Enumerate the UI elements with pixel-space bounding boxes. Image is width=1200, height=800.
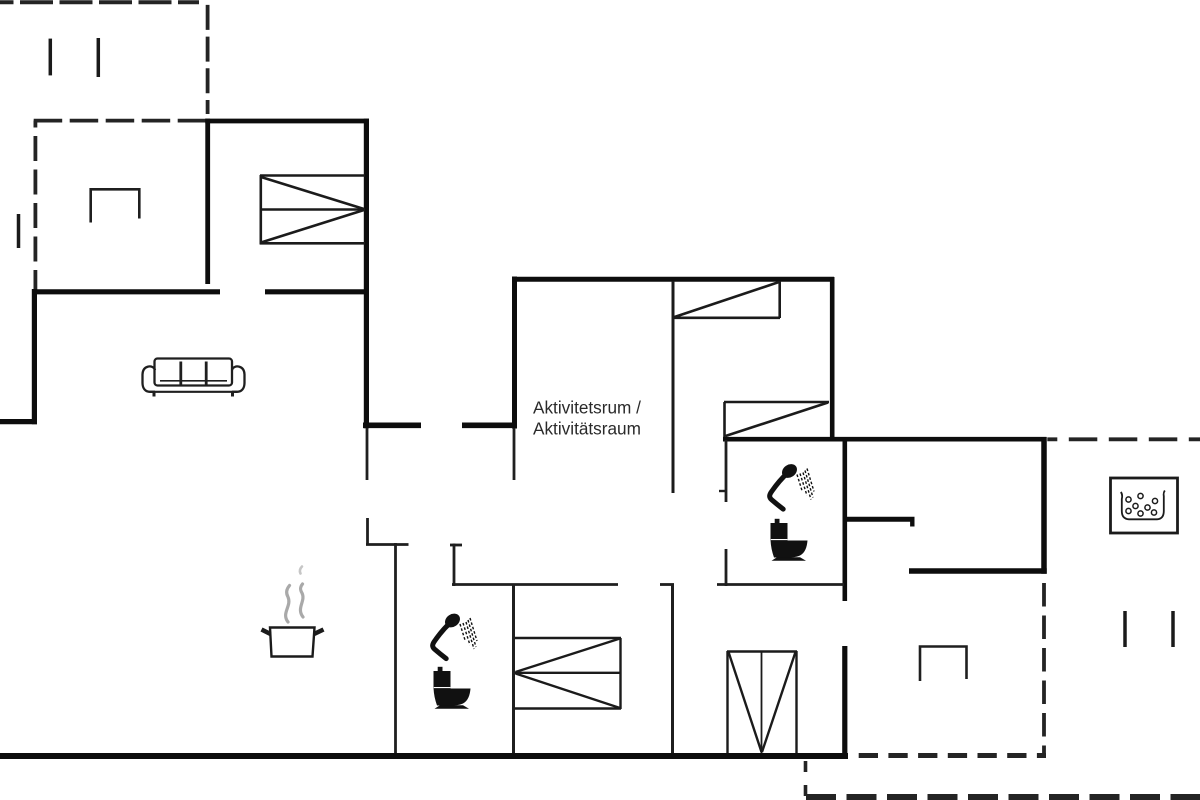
- svg-text:Aktivitetsrum /: Aktivitetsrum /: [533, 398, 641, 418]
- svg-text:Aktivitätsraum: Aktivitätsraum: [533, 419, 641, 439]
